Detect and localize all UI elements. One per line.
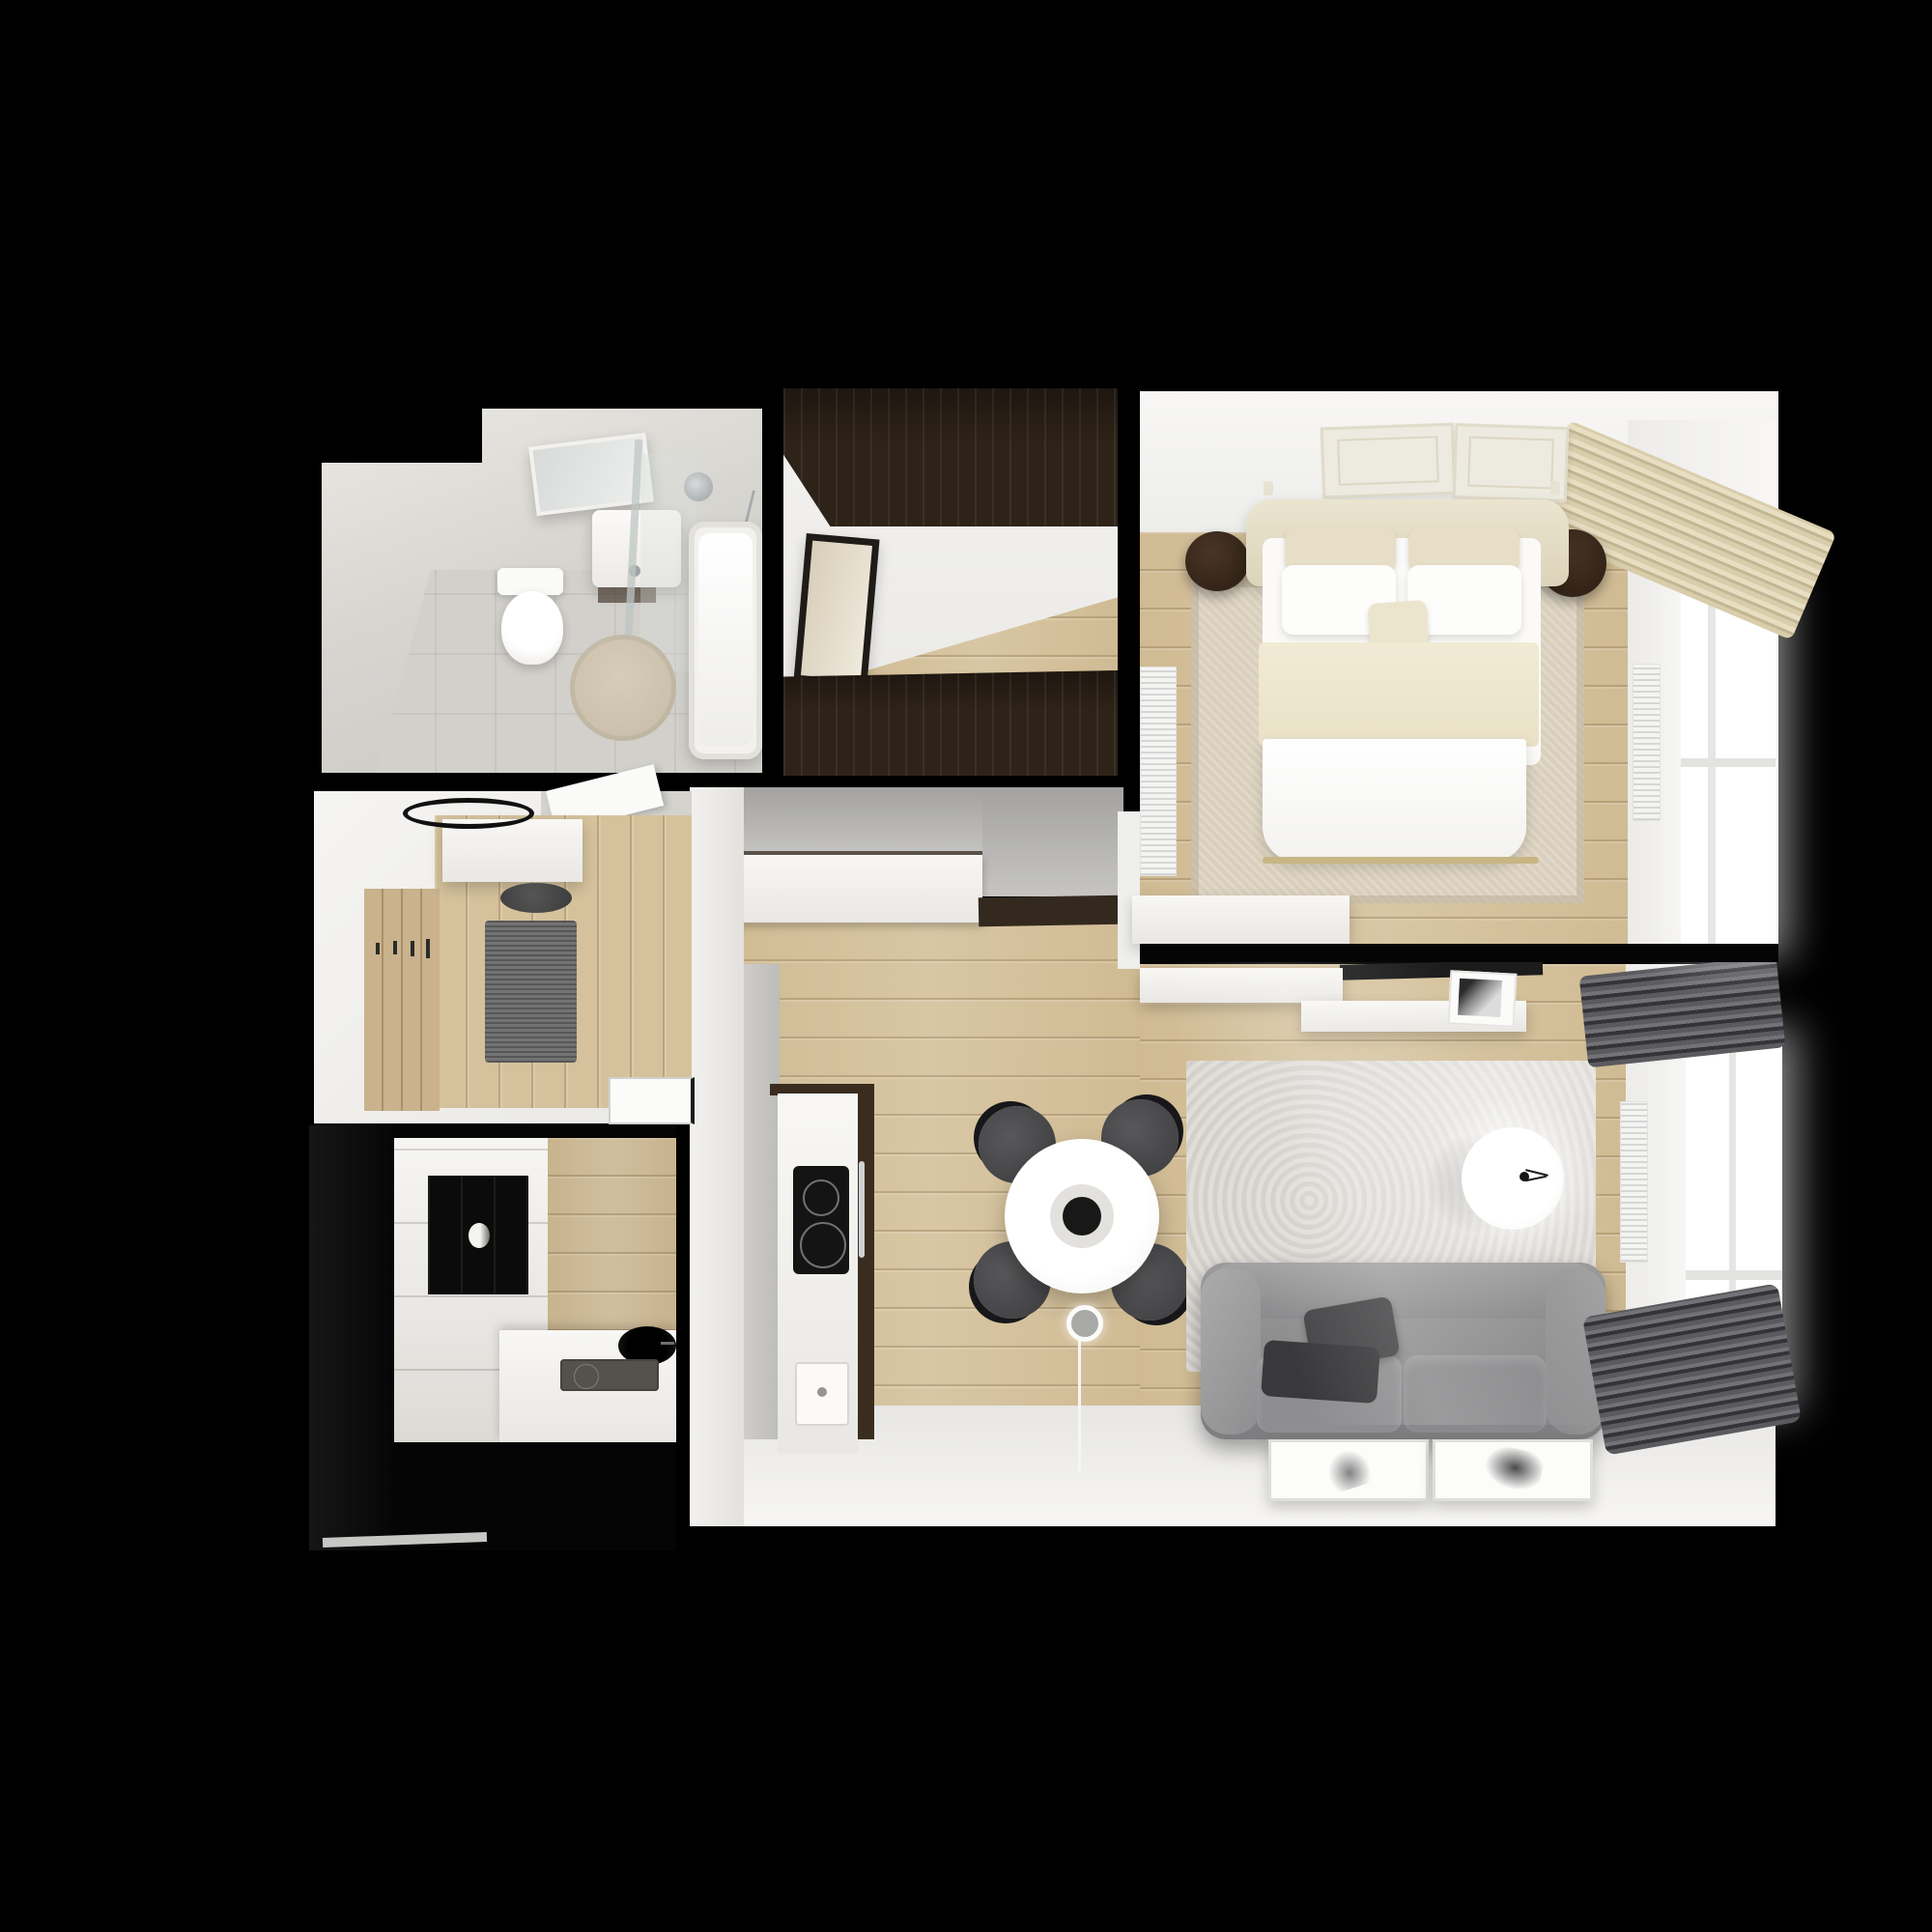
tray-circle	[574, 1364, 599, 1389]
coat-hook-4	[426, 939, 430, 958]
coat-hook-2	[393, 941, 397, 954]
coat-hook-3	[411, 941, 414, 956]
bedroom-divider-wall	[1118, 811, 1140, 969]
blanket	[1259, 642, 1539, 747]
room-entry-hall	[783, 388, 1118, 776]
kitchen-island	[770, 1084, 874, 1453]
picture-2-art	[1478, 1442, 1546, 1496]
island-sink	[795, 1362, 849, 1426]
kitchen-cooktop-tray	[560, 1359, 659, 1391]
duvet	[1263, 739, 1526, 862]
magazine-photo	[1458, 979, 1502, 1017]
coat-panel	[364, 889, 440, 1111]
bedroom-dresser	[1132, 895, 1350, 944]
hall-floor-wedge	[840, 580, 1118, 678]
ring-ceiling-lamp	[403, 798, 534, 829]
toilet-bowl	[501, 591, 563, 665]
floor-picture-1	[1268, 1439, 1429, 1501]
wall-hook-left	[1264, 481, 1273, 496]
coffee-table	[1462, 1127, 1564, 1230]
hall-dark-rug	[485, 921, 577, 1063]
magazine	[1448, 970, 1518, 1028]
niche-light-globe	[469, 1223, 490, 1248]
sofa-armrest-left	[1201, 1268, 1261, 1435]
kitchen-wood-floor	[548, 1138, 676, 1330]
bath-round-rug	[570, 635, 676, 741]
bathtub	[689, 522, 762, 759]
induction-hob	[793, 1166, 849, 1274]
room-hallway	[314, 791, 692, 1123]
room-bathroom	[322, 409, 762, 773]
sofa-seat-right	[1404, 1355, 1547, 1433]
leaning-mirror	[793, 533, 879, 688]
bedroom-window-glass	[1681, 580, 1776, 944]
frame-1-inner	[1337, 436, 1439, 486]
hall-wardrobe-top	[783, 388, 1118, 526]
sofa	[1201, 1263, 1605, 1439]
table-centerpiece-bowl	[1063, 1197, 1101, 1236]
picture-1-art	[1322, 1444, 1375, 1494]
bed	[1246, 499, 1569, 868]
hall-door	[609, 1077, 695, 1124]
bedroom-window-mullion-h	[1681, 758, 1776, 767]
sofa-cushion-2	[1261, 1340, 1380, 1404]
bathtub-basin	[698, 533, 753, 746]
sofa-back	[1214, 1263, 1592, 1319]
hob-burner-small	[803, 1179, 839, 1216]
sink-drain	[817, 1387, 827, 1397]
pendant-lamp	[1066, 1305, 1103, 1342]
living-left-wall	[690, 787, 744, 1526]
pendant-cord	[1078, 1328, 1081, 1473]
room-kitchen	[309, 1125, 676, 1550]
dark-wall-shelf-top	[979, 895, 1124, 927]
bedroom-bottom-wall	[1140, 944, 1778, 962]
living-top-wall-right	[982, 787, 1123, 896]
hall-wardrobe-bottom	[783, 670, 1118, 776]
cabinet-open-niche	[428, 1176, 528, 1294]
island-towel-rail	[859, 1161, 865, 1258]
wall-hook-right	[1550, 481, 1560, 496]
hob-burner-large	[800, 1222, 846, 1268]
bedroom-left-panel	[1140, 667, 1177, 876]
room-bedroom	[1140, 391, 1778, 962]
apartment-render	[0, 0, 1932, 1932]
bathroom-wall-notch	[322, 409, 482, 463]
frame-2-inner	[1467, 436, 1554, 489]
island-dark-side	[858, 1084, 874, 1439]
coat-hook-1	[376, 943, 380, 954]
bedroom-radiator	[1633, 664, 1661, 821]
kitchen-sink-faucet	[661, 1342, 674, 1345]
floor-picture-2	[1433, 1439, 1593, 1501]
floating-sideboard-1	[1140, 968, 1343, 1003]
dining-table	[1005, 1139, 1159, 1293]
hall-pouf	[500, 883, 572, 913]
living-radiator	[1620, 1101, 1648, 1263]
nightstand-left	[1185, 531, 1249, 591]
kitchen-tall-cabinet	[309, 1125, 394, 1550]
wall-frame-1	[1321, 423, 1456, 499]
window-mullion-h	[1686, 1270, 1782, 1280]
bed-frame-foot	[1263, 857, 1539, 864]
